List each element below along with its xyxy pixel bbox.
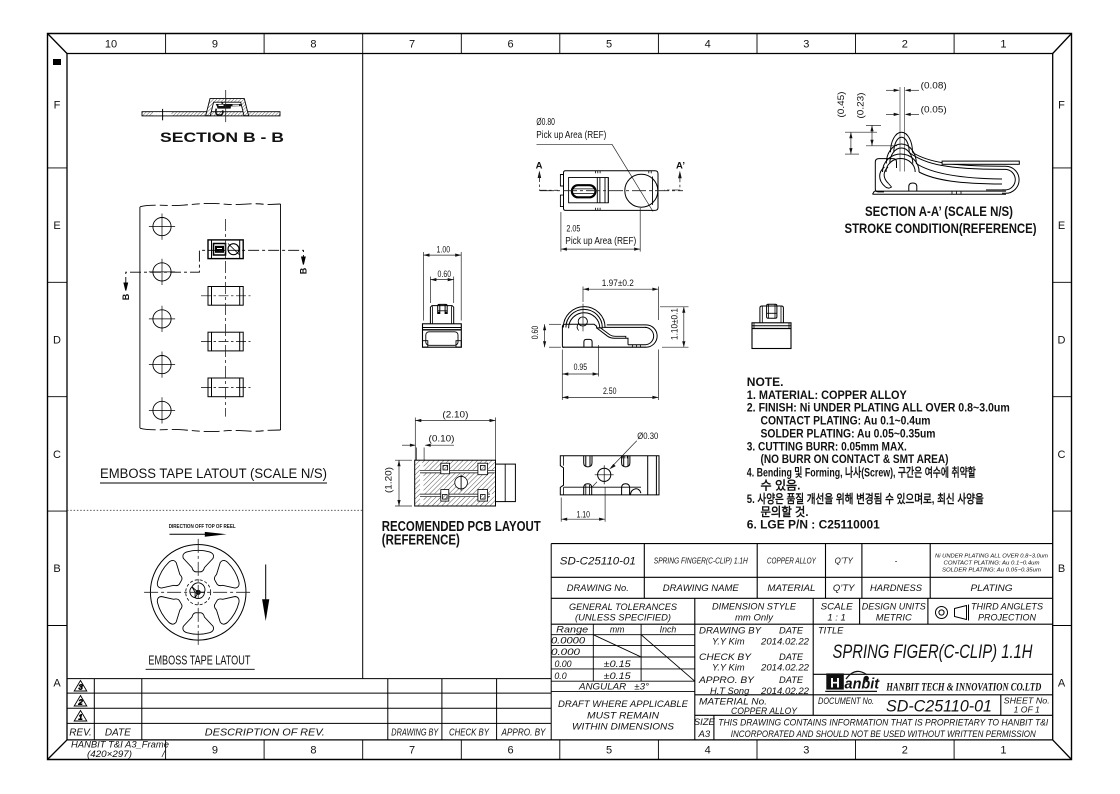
svg-text:F: F [1058,100,1065,112]
svg-text:1.97±0.2: 1.97±0.2 [602,277,634,288]
svg-text:SECTION B - B: SECTION B - B [160,130,284,145]
svg-text:0.00: 0.00 [554,659,571,669]
svg-text:SOLDER PLATING: Au 0.05~0.35um: SOLDER PLATING: Au 0.05~0.35um [942,568,1041,574]
svg-text:SCALE: SCALE [821,602,854,613]
svg-text:5: 5 [606,745,612,757]
svg-text:4: 4 [705,745,711,757]
svg-text:H: H [830,676,840,691]
svg-text:DESCRIPTION OF REV.: DESCRIPTION OF REV. [205,727,325,738]
svg-text:THIRD ANGLETS: THIRD ANGLETS [971,602,1044,613]
svg-text:TITLE: TITLE [818,626,844,636]
svg-text:5: 5 [606,39,612,51]
svg-text:5. 사양은 품질 개선을 위해 변경됨 수 있으며로, 최: 5. 사양은 품질 개선을 위해 변경됨 수 있으며로, 최신 사양을 [747,491,984,506]
svg-text:CHECK BY: CHECK BY [449,727,490,738]
svg-text:0.60: 0.60 [529,326,540,340]
svg-text:INCORPORATED AND SHOULD NOT BE: INCORPORATED AND SHOULD NOT BE USED WITH… [731,729,1036,739]
svg-text:APPRO. BY: APPRO. BY [698,675,755,685]
svg-text:C: C [1058,449,1066,461]
svg-text:DESIGN UNITS: DESIGN UNITS [862,602,927,613]
svg-text:DRAWING BY: DRAWING BY [699,626,762,636]
svg-text:(420×297): (420×297) [87,749,132,760]
svg-text:Y.Y Kim: Y.Y Kim [712,663,745,673]
svg-text:HARDNESS: HARDNESS [870,583,923,594]
svg-text:Pick up Area (REF): Pick up Area (REF) [536,130,606,141]
svg-text:1: 1 [1000,745,1006,757]
svg-text:1: 1 [79,712,83,721]
svg-text:6: 6 [508,39,514,51]
svg-text:CONTACT PLATING: Au 0.1~0.4um: CONTACT PLATING: Au 0.1~0.4um [761,414,931,428]
svg-text:E: E [53,220,60,232]
svg-text:(REFERENCE): (REFERENCE) [382,533,460,549]
svg-text:2.05: 2.05 [566,224,580,235]
svg-text:9: 9 [212,745,218,757]
svg-text:MATERIAL: MATERIAL [767,583,815,594]
svg-text:1.00: 1.00 [437,244,451,255]
svg-text:0.0000: 0.0000 [551,636,585,646]
svg-text:DATE: DATE [779,626,804,636]
svg-text:GENERAL TOLERANCES: GENERAL TOLERANCES [569,602,678,613]
svg-text:Ø0.30: Ø0.30 [637,430,658,441]
svg-text:8: 8 [310,39,316,51]
svg-text:A3: A3 [697,729,710,740]
svg-text:ANGULAR ±3°: ANGULAR ±3° [578,681,650,691]
svg-text:0.0: 0.0 [554,671,566,681]
svg-text:1 OF 1: 1 OF 1 [1014,705,1040,715]
svg-text:±0.15: ±0.15 [604,659,631,669]
svg-text:10: 10 [105,39,117,51]
svg-text:REV.: REV. [69,727,92,738]
svg-text:±0.15: ±0.15 [604,671,631,681]
svg-text:B: B [1058,563,1065,575]
svg-text:STROKE CONDITION(REFERENCE): STROKE CONDITION(REFERENCE) [845,220,1037,236]
svg-text:1.10±0.1: 1.10±0.1 [668,308,679,340]
svg-text:1: 1 [1000,39,1006,51]
svg-text:(0.45): (0.45) [835,92,846,118]
svg-text:Y.Y Kim: Y.Y Kim [712,636,745,646]
svg-text:2014.02.22: 2014.02.22 [760,686,810,696]
svg-text:A: A [53,678,61,690]
svg-text:DATE: DATE [779,652,804,662]
svg-text:F: F [54,100,61,112]
svg-text:DIMENSION STYLE: DIMENSION STYLE [712,602,797,613]
svg-text:PLATING: PLATING [971,583,1013,594]
svg-text:A: A [536,161,543,172]
svg-text:(UNLESS SPECIFIED): (UNLESS SPECIFIED) [575,613,671,624]
svg-text:EMBOSS TAPE LATOUT (SCALE: EMBOSS TAPE LATOUT (SCALE N/S) [100,466,327,481]
svg-text:-: - [895,557,898,566]
svg-text:6. LGE P/N : C25110001: 6. LGE P/N : C25110001 [747,517,880,531]
svg-text:PROJECTION: PROJECTION [978,613,1036,624]
svg-text:2: 2 [78,697,84,706]
svg-text:METRIC: METRIC [876,613,912,624]
svg-text:CONTACT PLATING: Au 0.1~0.4um: CONTACT PLATING: Au 0.1~0.4um [944,561,1040,567]
svg-text:Range: Range [556,624,588,634]
svg-text:Q’TY: Q’TY [833,583,855,594]
svg-text:APPRO. BY: APPRO. BY [501,727,547,738]
svg-text:2: 2 [902,39,908,51]
svg-text:THIS DRAWING CONTAINS INFORMAT: THIS DRAWING CONTAINS INFORMATION THAT I… [718,718,1048,728]
svg-text:1.10: 1.10 [576,508,590,519]
svg-text:Q’TY: Q’TY [835,557,854,566]
svg-text:0.000: 0.000 [551,647,580,657]
svg-text:6: 6 [508,745,514,757]
svg-text:0.95: 0.95 [574,361,588,372]
svg-text:(0.23): (0.23) [855,93,866,119]
svg-text:Ni UNDER PLATING ALL OVER 0.8~: Ni UNDER PLATING ALL OVER 0.8~3.0um [935,554,1048,560]
svg-text:(NO BURR ON CONTACT & SMT AREA: (NO BURR ON CONTACT & SMT AREA) [761,452,949,466]
svg-text:mm Only: mm Only [735,613,774,624]
svg-text:Pick up Area (REF): Pick up Area (REF) [565,236,636,247]
svg-text:B: B [121,293,131,300]
svg-text:4: 4 [705,39,711,51]
svg-text:SD-C25110-01: SD-C25110-01 [560,556,636,568]
svg-text:9: 9 [212,39,218,51]
svg-text:2014.02.22: 2014.02.22 [760,663,810,673]
svg-text:SPRING FINGER(C-CLIP) 1.1H: SPRING FINGER(C-CLIP) 1.1H [654,557,748,566]
svg-text:C: C [53,449,61,461]
svg-text:DIRECTION OFF TOP OF REEL: DIRECTION OFF TOP OF REEL [169,524,236,530]
svg-text:7: 7 [409,745,415,757]
svg-text:D: D [53,335,61,347]
svg-text:H.T Song: H.T Song [710,686,750,696]
svg-text:COPPER ALLOY: COPPER ALLOY [767,557,817,566]
svg-text:DRAWING NAME: DRAWING NAME [663,583,740,594]
svg-text:SPRING FIGER(C-CLIP) 1.1H: SPRING FIGER(C-CLIP) 1.1H [833,641,1034,663]
svg-text:D: D [1058,335,1066,347]
svg-text:anbit: anbit [845,677,881,693]
svg-text:A: A [1058,678,1066,690]
svg-text:8: 8 [310,745,316,757]
svg-text:(2.10): (2.10) [442,408,468,419]
svg-text:HANBIT TECH & INNOVATION CO.L: HANBIT TECH & INNOVATION CO.LTD [886,681,1042,693]
svg-text:mm: mm [610,624,625,634]
svg-text:3: 3 [803,39,809,51]
svg-text:E: E [1058,220,1065,232]
svg-text:SECTION A-A’ (SCALE N/S): SECTION A-A’ (SCALE N/S) [865,203,1013,219]
svg-text:2: 2 [902,745,908,757]
svg-text:DOCUMENT No.: DOCUMENT No. [818,696,874,706]
svg-text:수 있음.: 수 있음. [761,478,801,493]
svg-text:SIZE: SIZE [694,717,716,728]
svg-text:DATE: DATE [779,675,804,685]
svg-text:3: 3 [803,745,809,757]
svg-text:A’: A’ [676,161,685,172]
svg-text:EMBOSS TAPE LATOUT: EMBOSS TAPE LATOUT [148,653,250,668]
svg-text:7: 7 [409,39,415,51]
svg-text:DRAWING No.: DRAWING No. [567,583,629,594]
svg-text:2014.02.22: 2014.02.22 [760,636,810,646]
svg-text:(0.10): (0.10) [429,432,455,443]
svg-text:B: B [53,563,60,575]
svg-text:MUST REMAIN: MUST REMAIN [587,710,659,721]
svg-text:0.60: 0.60 [438,268,452,279]
svg-text:1 : 1: 1 : 1 [827,613,846,624]
svg-text:DATE: DATE [105,727,131,738]
svg-text:CHECK BY: CHECK BY [699,652,752,662]
svg-text:Inch: Inch [660,624,677,634]
svg-text:DRAFT WHERE APPLICABLE: DRAFT WHERE APPLICABLE [558,699,689,710]
svg-text:2. FINISH: Ni UNDER PLATING AL: 2. FINISH: Ni UNDER PLATING ALL OVER 0.8… [747,401,1010,415]
svg-text:2.50: 2.50 [603,385,617,396]
svg-text:4. Bending 및 Forming, 나사(Screw: 4. Bending 및 Forming, 나사(Screw), 구간은 여수에… [747,465,976,480]
svg-text:(0.08): (0.08) [921,79,947,90]
svg-text:(0.05): (0.05) [921,104,947,115]
svg-text:SD-C25110-01: SD-C25110-01 [886,697,992,716]
svg-text:Ø0.80: Ø0.80 [536,117,555,128]
svg-text:WITHIN DIMENSIONS: WITHIN DIMENSIONS [572,722,675,733]
svg-text:NOTE.: NOTE. [747,375,784,389]
svg-text:B: B [298,267,308,274]
svg-text:DRAWING BY: DRAWING BY [391,727,439,738]
svg-text:COPPER ALLOY: COPPER ALLOY [731,706,798,716]
svg-text:(1.20): (1.20) [383,467,394,493]
